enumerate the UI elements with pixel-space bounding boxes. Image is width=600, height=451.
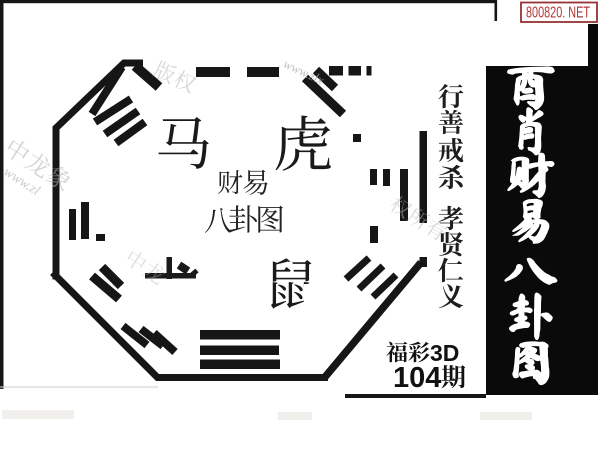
svg-text:800820. NET: 800820. NET <box>526 5 590 22</box>
svg-text:104: 104 <box>393 362 441 394</box>
